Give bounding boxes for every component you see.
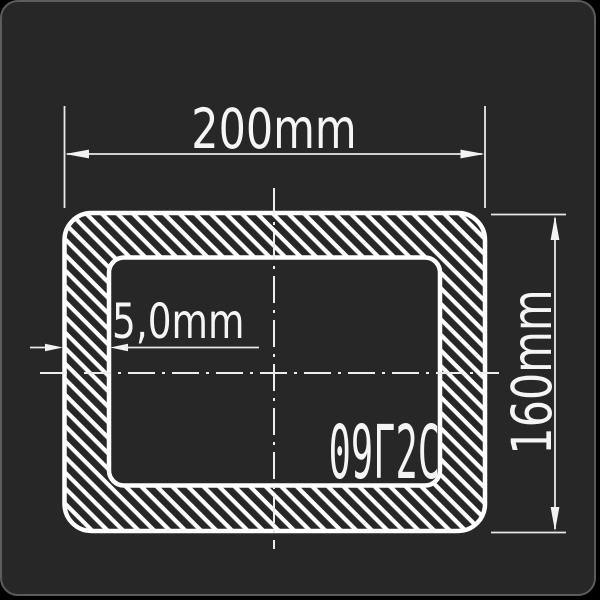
height-dimension: 160mm	[491, 215, 566, 533]
profile-cross-section-drawing: 09Г2С 200mm 160mm	[2, 2, 596, 596]
thickness-arrowhead-right-icon	[45, 344, 63, 352]
width-dimension-label: 200mm	[191, 97, 356, 162]
arrowhead-up-icon	[551, 216, 560, 240]
steel-grade-label: 09Г2С	[329, 410, 440, 496]
arrowhead-left-icon	[65, 150, 89, 159]
arrowhead-right-icon	[461, 150, 485, 159]
page-background: 09Г2С 200mm 160mm	[0, 0, 600, 600]
arrowhead-down-icon	[551, 507, 560, 531]
thickness-dimension-label: 5,0mm	[112, 295, 244, 351]
drawing-card: 09Г2С 200mm 160mm	[0, 0, 596, 596]
height-dimension-label: 160mm	[500, 289, 565, 454]
